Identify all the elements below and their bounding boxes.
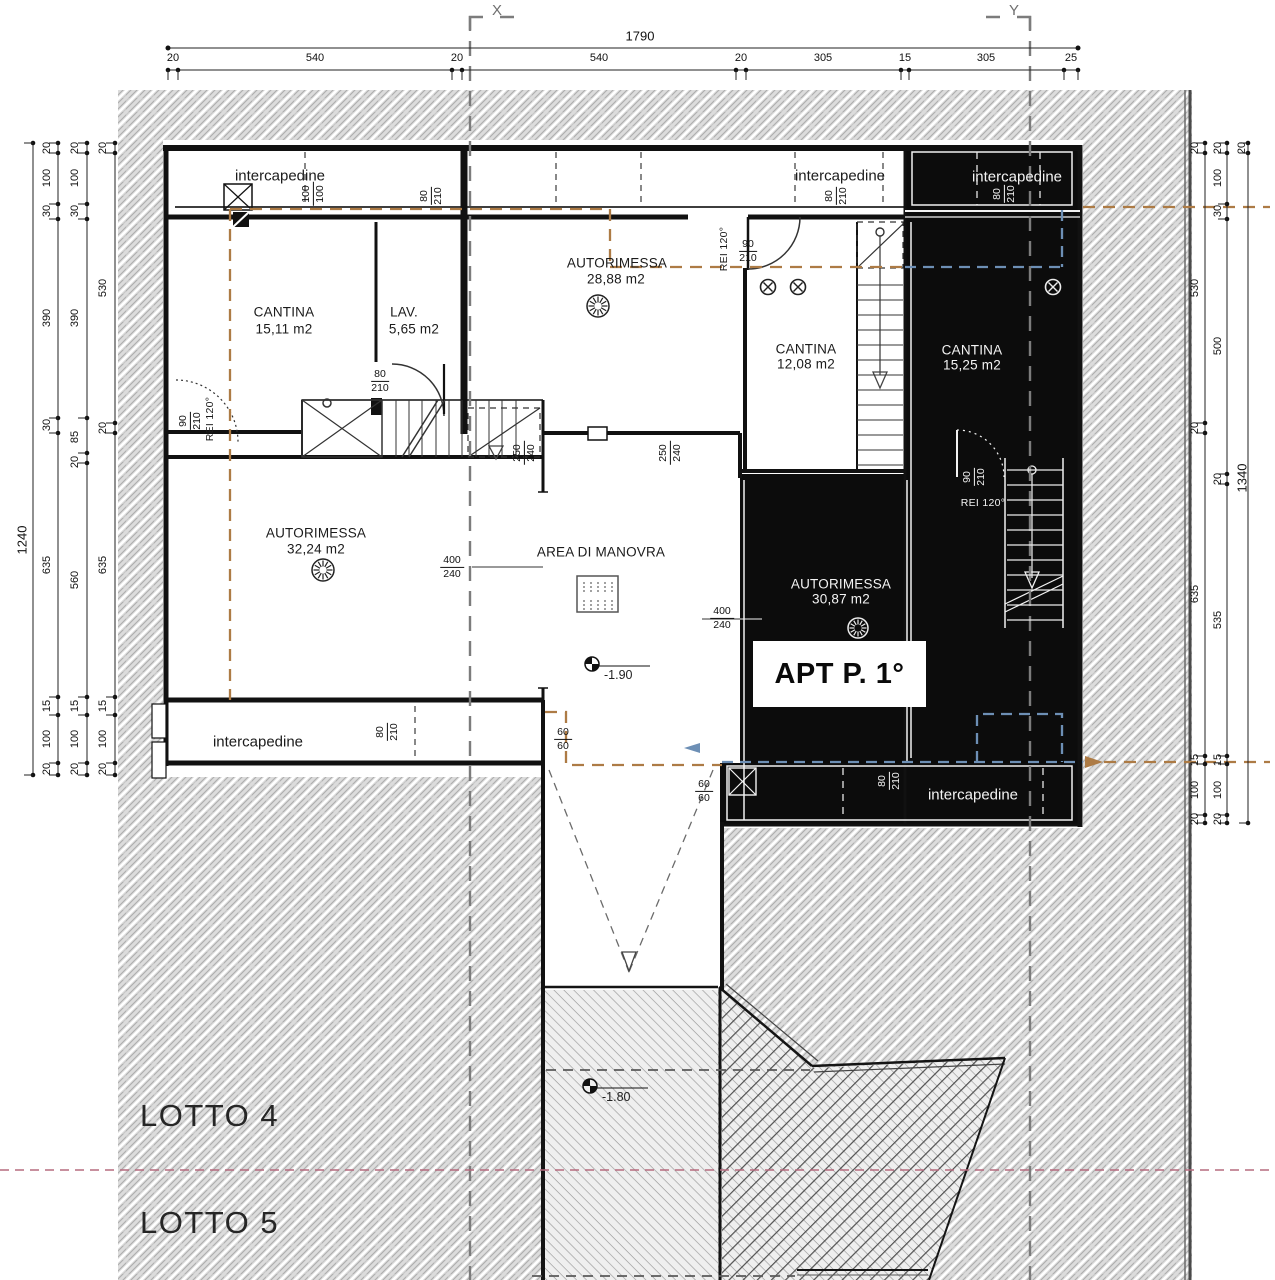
dim-left-a: 635: [41, 556, 53, 574]
room-lav-name: LAV.: [390, 305, 418, 320]
room-autorimessa-right-area: 30,87 m2: [812, 592, 870, 607]
room-autorimessa-top-area: 28,88 m2: [587, 272, 645, 287]
dim-left-a: 100: [41, 730, 53, 748]
room-lav-area: 5,65 m2: [389, 322, 439, 337]
dim-right-a: 20: [1189, 813, 1201, 825]
dim-left-b: 390: [69, 309, 81, 327]
level-area-manovra: -1.90: [604, 668, 633, 682]
room-autorimessa-top-name: AUTORIMESSA: [567, 256, 667, 271]
dim-top-seg: 20: [451, 52, 463, 64]
dim-right-a: 20: [1189, 422, 1201, 434]
dim-top-seg: 540: [590, 52, 608, 64]
rei-label-left-door: REI 120°: [204, 397, 216, 442]
dim-top-seg: 15: [899, 52, 911, 64]
room-cantina-tl-area: 15,11 m2: [256, 322, 313, 337]
dim-right-a: 20: [1189, 142, 1201, 154]
passage-size-250x240: 250240: [511, 441, 537, 465]
dim-top-seg: 20: [735, 52, 747, 64]
dim-right-b: 535: [1212, 611, 1224, 629]
dim-right-a: 530: [1189, 279, 1201, 297]
door-size-90x210: 90210: [961, 468, 987, 486]
dim-left-b: 20: [69, 456, 81, 468]
room-autorimessa-left-area: 32,24 m2: [287, 542, 345, 557]
door-size-80x210: 80210: [374, 723, 400, 741]
door-size-80x210: 80210: [371, 368, 389, 394]
garage-door-size-400x240: 400240: [440, 554, 464, 580]
dim-left-b: 560: [69, 571, 81, 589]
dim-right-b: 20: [1212, 473, 1224, 485]
dim-left-c: 635: [97, 556, 109, 574]
dim-left-a: 30: [41, 205, 53, 217]
dim-left-b: 20: [69, 142, 81, 154]
dim-left-c: 15: [97, 700, 109, 712]
dim-left-c: 530: [97, 279, 109, 297]
dim-left-b: 15: [69, 700, 81, 712]
dim-left-c: 20: [97, 763, 109, 775]
rei-label-center-door: REI 120°: [718, 227, 730, 272]
door-size-80x210: 80210: [991, 185, 1017, 203]
dim-right-b: 20: [1212, 813, 1224, 825]
dim-right-total: 1340: [1235, 464, 1250, 493]
dim-left-c: 20: [97, 142, 109, 154]
grid-label-x: X: [492, 2, 502, 19]
dim-left-a: 390: [41, 309, 53, 327]
room-cantina-center-name: CANTINA: [776, 342, 837, 357]
dim-left-a: 30: [41, 419, 53, 431]
dim-right-a: 15: [1189, 754, 1201, 766]
dim-left-a: 15: [41, 700, 53, 712]
floor-plan-drawing: [0, 0, 1275, 1280]
drain-size-60x60: 6060: [695, 778, 713, 804]
dim-left-b: 100: [69, 169, 81, 187]
room-cantina-center-area: 12,08 m2: [777, 357, 835, 372]
intercapedine-top-right: intercapedine: [972, 169, 1062, 186]
dim-left-total: 1240: [15, 526, 30, 555]
intercapedine-top-center: intercapedine: [795, 168, 885, 185]
dim-top-seg: 540: [306, 52, 324, 64]
dim-right-b: 100: [1212, 169, 1224, 187]
dim-top-total: 1790: [626, 29, 655, 44]
door-size-80x210: 80210: [823, 187, 849, 205]
dim-right-c: 20: [1236, 142, 1248, 154]
dim-right-a: 100: [1189, 781, 1201, 799]
opening-size-100x100: 100100: [300, 182, 326, 206]
dim-top-seg: 25: [1065, 52, 1077, 64]
drain-size-60x60: 6060: [554, 726, 572, 752]
level-ramp: -1.80: [602, 1090, 631, 1104]
door-size-80x210: 80210: [876, 772, 902, 790]
intercapedine-bottom-right: intercapedine: [928, 787, 1018, 804]
door-size-90x210: 90210: [739, 238, 757, 264]
door-size-80x210: 80210: [418, 187, 444, 205]
lot-5-label: LOTTO 5: [140, 1205, 279, 1241]
dim-left-b: 85: [69, 431, 81, 443]
room-cantina-tl-name: CANTINA: [254, 305, 315, 320]
room-autorimessa-left-name: AUTORIMESSA: [266, 526, 366, 541]
apt-tag-box: APT P. 1°: [753, 641, 926, 707]
dim-right-b: 15: [1212, 754, 1224, 766]
intercapedine-bottom-left: intercapedine: [213, 734, 303, 751]
garage-door-size-400x240: 400240: [710, 605, 734, 631]
dim-right-b: 500: [1212, 337, 1224, 355]
dim-left-a: 100: [41, 169, 53, 187]
dim-right-b: 100: [1212, 781, 1224, 799]
grid-label-y: Y: [1009, 2, 1019, 19]
room-area-manovra: AREA DI MANOVRA: [537, 545, 665, 560]
dim-right-b: 30: [1212, 205, 1224, 217]
passage-size-250x240: 250240: [657, 441, 683, 465]
room-autorimessa-right-name: AUTORIMESSA: [791, 577, 891, 592]
dim-top-seg: 305: [977, 52, 995, 64]
door-size-90x210: 90210: [177, 412, 203, 430]
dim-left-c: 20: [97, 422, 109, 434]
room-cantina-right-name: CANTINA: [942, 343, 1003, 358]
dim-top-seg: 20: [167, 52, 179, 64]
rei-label-right-stair-door: REI 120°: [961, 497, 1006, 509]
dim-right-b: 20: [1212, 142, 1224, 154]
dim-left-b: 30: [69, 205, 81, 217]
dim-right-a: 635: [1189, 585, 1201, 603]
dim-left-a: 20: [41, 763, 53, 775]
apt-tag-label: APT P. 1°: [774, 658, 904, 691]
dim-left-a: 20: [41, 142, 53, 154]
dim-left-b: 20: [69, 763, 81, 775]
dim-left-c: 100: [97, 730, 109, 748]
floor-plan-page: X Y 1790 20 540 20 540 20 305 15 305 25 …: [0, 0, 1275, 1280]
dim-left-b: 100: [69, 730, 81, 748]
room-cantina-right-area: 15,25 m2: [943, 358, 1001, 373]
lot-4-label: LOTTO 4: [140, 1098, 279, 1134]
dim-top-seg: 305: [814, 52, 832, 64]
